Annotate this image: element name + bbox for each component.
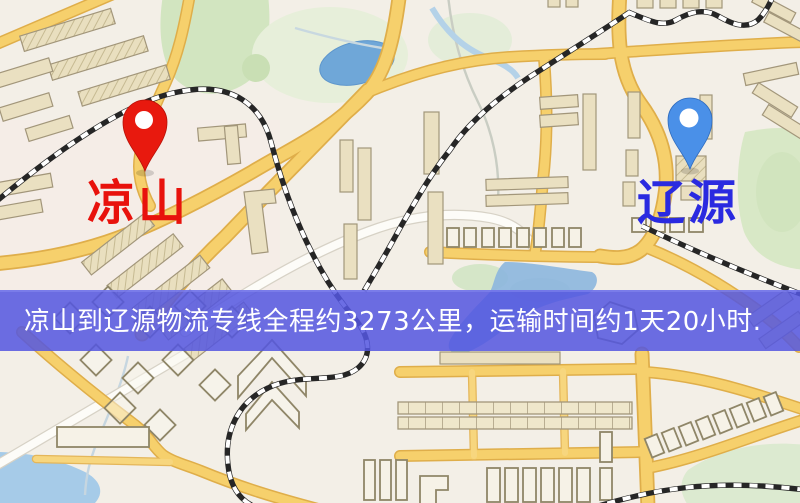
route-info-banner: 凉山到辽源物流专线全程约3273公里，运输时间约1天20小时. xyxy=(0,290,800,351)
banner-top-edge xyxy=(0,290,800,292)
map-canvas: 凉山 辽源 凉山到辽源物流专线全程约3273公里，运输时间约1天20小时. xyxy=(0,0,800,503)
destination-label: 辽源 xyxy=(637,175,739,231)
origin-label: 凉山 xyxy=(87,175,189,231)
banner-text: 凉山到辽源物流专线全程约3273公里，运输时间约1天20小时. xyxy=(24,307,762,337)
destination-pin-hole xyxy=(680,109,699,128)
origin-pin-hole xyxy=(135,111,153,129)
map-screenshot: 凉山 辽源 凉山到辽源物流专线全程约3273公里，运输时间约1天20小时. xyxy=(0,0,800,503)
